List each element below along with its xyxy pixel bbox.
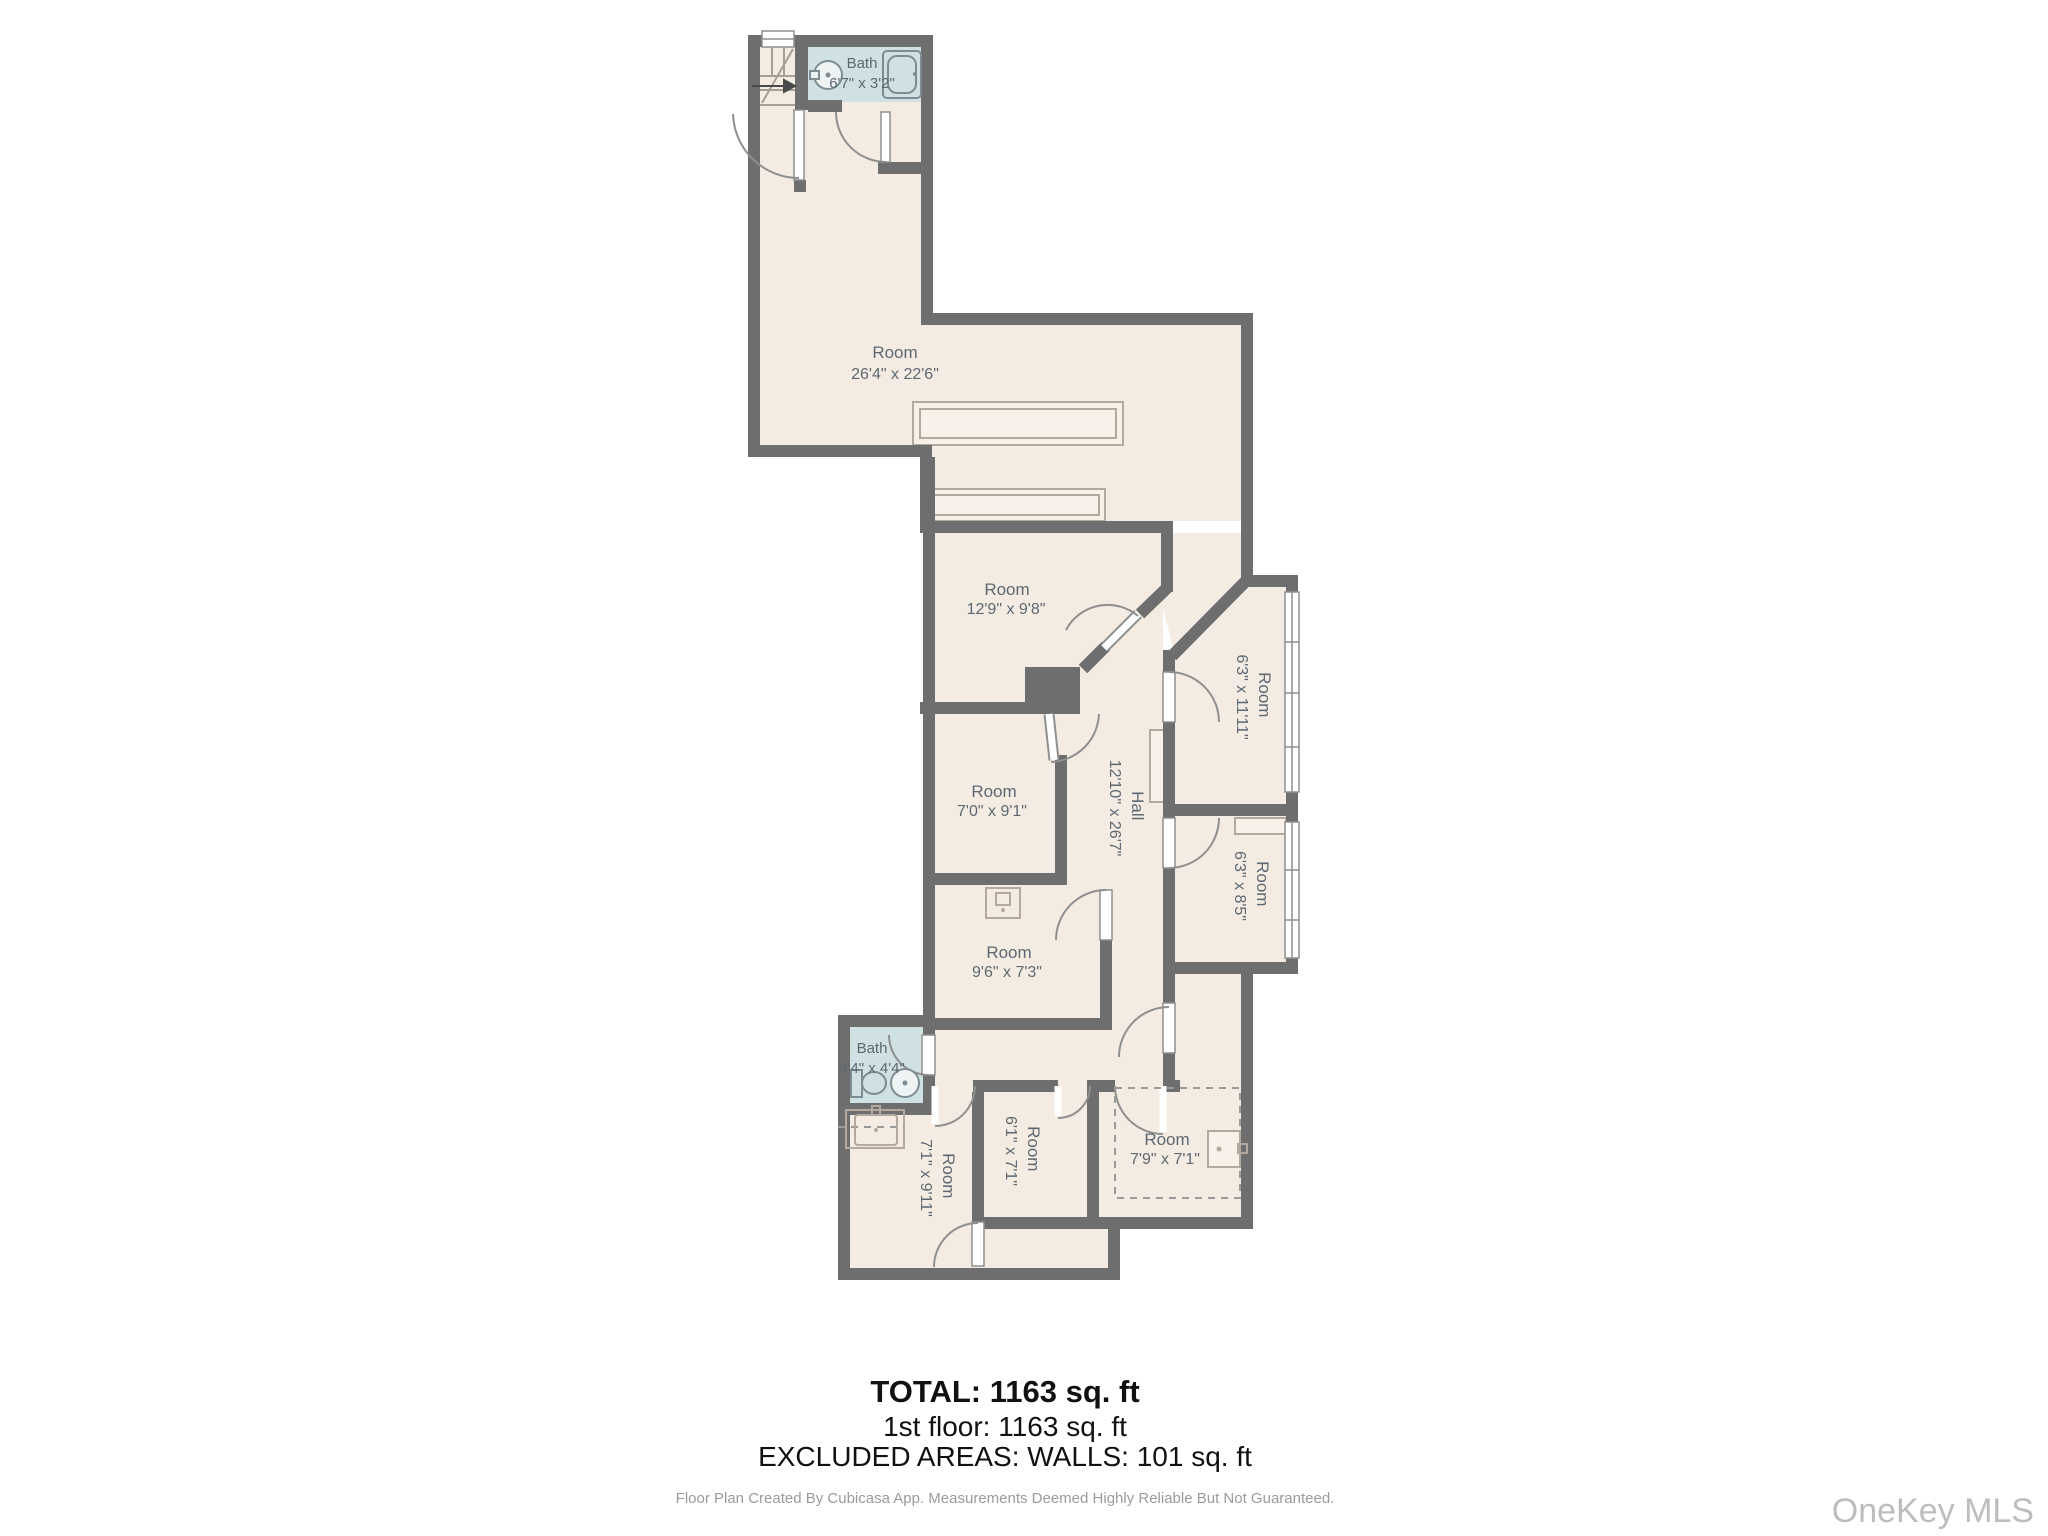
label-room-129-dims: 12'9" x 9'8" <box>967 601 1046 618</box>
window-top-wall <box>762 31 794 47</box>
label-room-96-dims: 9'6" x 7'3" <box>972 964 1042 981</box>
summary-block: TOTAL: 1163 sq. ft 1st floor: 1163 sq. f… <box>676 1374 1335 1507</box>
label-bath-top-dims: 6'7" x 3'2" <box>829 75 895 92</box>
label-bath-lower: Bath <box>857 1040 888 1057</box>
label-bath-lower-dims: 4'4" x 4'4" <box>839 1060 905 1077</box>
label-bath-top: Bath <box>847 55 878 72</box>
excluded-areas-text: EXCLUDED AREAS: WALLS: 101 sq. ft <box>758 1441 1252 1472</box>
floor-plan-canvas: Bath 6'7" x 3'2" Room 26'4" x 22'6" Room… <box>0 0 2048 1536</box>
disclaimer-text: Floor Plan Created By Cubicasa App. Meas… <box>676 1490 1335 1507</box>
first-floor-text: 1st floor: 1163 sq. ft <box>883 1411 1127 1442</box>
label-room-79: Room <box>1144 1130 1189 1149</box>
label-big-room: Room <box>872 343 917 362</box>
window-east-lower <box>1285 822 1299 958</box>
watermark: OneKey MLS <box>1832 1492 2034 1530</box>
floor-plan-page: Bath 6'7" x 3'2" Room 26'4" x 22'6" Room… <box>0 0 2048 1536</box>
window-east-upper <box>1285 592 1299 792</box>
label-room-129: Room <box>984 580 1029 599</box>
label-room-70: Room <box>971 782 1016 801</box>
label-room-96: Room <box>986 943 1031 962</box>
label-room-79-dims: 7'9" x 7'1" <box>1130 1151 1200 1168</box>
label-room-70-dims: 7'0" x 9'1" <box>957 803 1027 820</box>
shelf <box>1235 818 1286 834</box>
label-big-room-dims: 26'4" x 22'6" <box>851 366 939 383</box>
counter-short <box>925 489 1105 521</box>
total-area-text: TOTAL: 1163 sq. ft <box>870 1374 1139 1409</box>
